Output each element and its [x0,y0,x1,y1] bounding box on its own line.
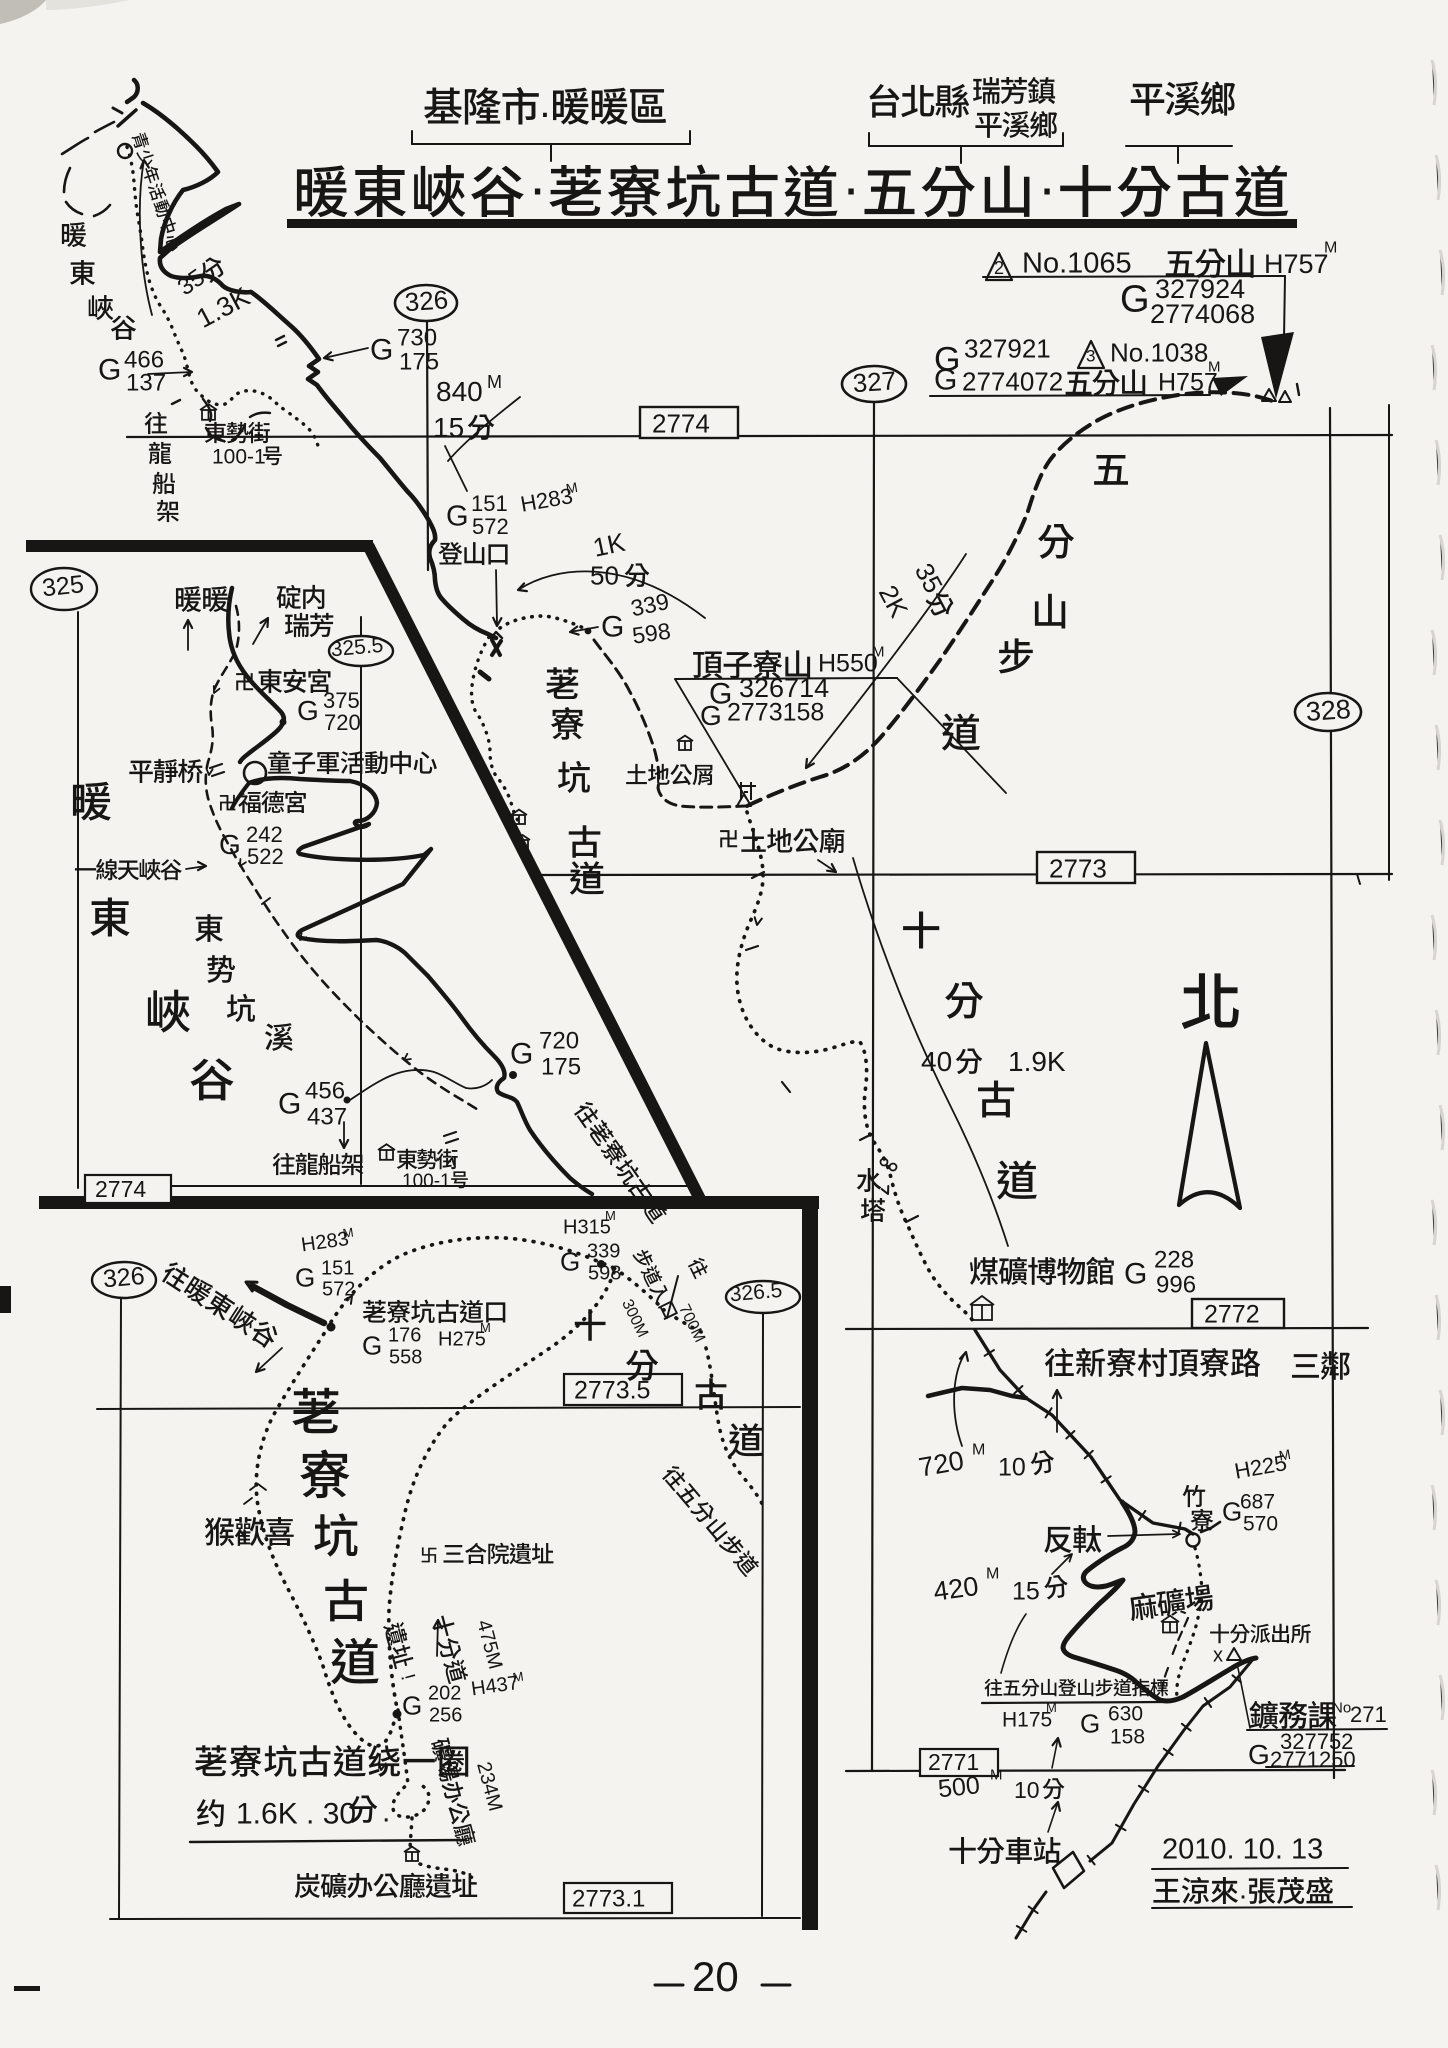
svg-text:175: 175 [541,1054,581,1081]
svg-text:No.1038: No.1038 [1110,337,1208,367]
svg-text:570: 570 [1243,1512,1278,1535]
svg-text:325.5: 325.5 [330,634,384,661]
svg-text:G: G [1248,1739,1270,1770]
svg-text:G: G [1120,279,1150,321]
svg-text:G: G [370,333,393,366]
svg-text:996: 996 [1156,1272,1196,1299]
svg-text:2773.5: 2773.5 [574,1377,650,1405]
svg-text:2773.1: 2773.1 [572,1886,645,1913]
svg-text:420: 420 [932,1571,981,1607]
svg-text:40: 40 [921,1046,952,1077]
svg-text:No.1065: No.1065 [1022,248,1132,280]
svg-text:M: M [1046,1700,1057,1715]
svg-text:M: M [872,644,885,661]
svg-text:M: M [972,1442,985,1459]
svg-text:2774068: 2774068 [1150,299,1255,329]
svg-text:2010. 10. 13: 2010. 10. 13 [1162,1834,1323,1866]
svg-text:H315: H315 [563,1217,611,1239]
svg-text:327: 327 [852,365,897,398]
svg-text:326.5: 326.5 [729,1279,783,1306]
svg-text:G: G [402,1690,422,1720]
svg-text:·: · [842,156,861,219]
svg-text:H175: H175 [1002,1708,1052,1731]
svg-text:G: G [510,1037,533,1070]
svg-text:151: 151 [321,1258,354,1280]
svg-text:151: 151 [471,491,508,516]
svg-text:326: 326 [404,284,449,317]
svg-text:572: 572 [472,514,509,539]
svg-text:G: G [98,353,121,386]
svg-text:437: 437 [307,1104,347,1131]
svg-text:720: 720 [324,710,361,735]
svg-text:M: M [480,1320,491,1335]
svg-text:328: 328 [1305,694,1352,727]
svg-text:·: · [528,156,547,219]
svg-text:2774: 2774 [652,408,710,438]
svg-text:2: 2 [994,258,1004,278]
svg-text:15: 15 [433,412,464,443]
svg-text:50: 50 [590,560,619,590]
svg-text:325: 325 [41,570,85,602]
svg-text:M: M [487,372,502,392]
svg-text:G: G [297,695,319,726]
svg-text:500: 500 [937,1771,981,1803]
svg-text:10: 10 [998,1454,1026,1482]
svg-text:G: G [601,610,624,643]
svg-text:2773: 2773 [1049,853,1107,883]
svg-text:100-1: 100-1 [402,1171,451,1192]
svg-text:15: 15 [1012,1578,1040,1606]
svg-text:522: 522 [247,844,284,869]
svg-text:339: 339 [587,1241,620,1263]
svg-text:2772: 2772 [1204,1301,1260,1329]
svg-text:630: 630 [1108,1702,1143,1725]
svg-text:G: G [278,1087,301,1120]
svg-text:1.9K: 1.9K [1008,1046,1066,1077]
svg-text:2771250: 2771250 [1270,1747,1356,1772]
svg-text:·: · [1038,156,1057,219]
svg-text:175: 175 [399,349,439,376]
svg-text:456: 456 [305,1078,345,1105]
svg-text:202: 202 [428,1683,461,1705]
svg-text:G: G [295,1262,315,1292]
svg-text:M: M [605,1208,616,1223]
svg-text:G: G [1080,1708,1100,1738]
svg-text:558: 558 [389,1347,422,1369]
svg-text:H757: H757 [1264,249,1329,279]
svg-text:G: G [362,1330,382,1360]
svg-text:3: 3 [1086,346,1095,365]
svg-text:687: 687 [1240,1490,1275,1513]
svg-text:327921: 327921 [964,333,1051,363]
svg-text:1.6K . 30: 1.6K . 30 [236,1797,356,1830]
svg-text:.: . [539,82,550,126]
svg-text:10: 10 [1014,1777,1040,1803]
svg-text:H275: H275 [438,1329,486,1351]
svg-text:840: 840 [436,376,483,407]
svg-text:M: M [990,1767,1003,1784]
svg-text:x: x [1213,1645,1223,1667]
svg-text:No: No [1332,1700,1351,1717]
svg-text:20: 20 [692,1953,739,2000]
svg-text:2773158: 2773158 [727,699,824,727]
svg-text:271: 271 [1350,1702,1387,1727]
svg-text:G: G [934,363,957,396]
svg-text:100-1: 100-1 [212,445,266,468]
svg-text:M: M [1324,240,1337,257]
svg-text:G: G [1124,1257,1147,1290]
svg-text:G: G [219,829,241,860]
svg-text:256: 256 [429,1705,462,1727]
svg-text:2774: 2774 [95,1176,146,1202]
svg-text:2774072: 2774072 [962,366,1063,396]
svg-text:G: G [700,700,722,731]
svg-text:M: M [1208,359,1221,376]
svg-text:M: M [342,1225,355,1241]
svg-text:G: G [446,501,469,533]
svg-text:176: 176 [388,1325,421,1347]
svg-text:730: 730 [397,325,437,352]
svg-text:M: M [986,1566,999,1583]
svg-text:326: 326 [102,1262,146,1294]
svg-text:598: 598 [631,618,673,649]
svg-text:M: M [512,1669,525,1685]
svg-text:228: 228 [1154,1247,1194,1274]
svg-text:.: . [1239,1874,1247,1906]
svg-text:158: 158 [1110,1725,1145,1748]
svg-text:.: . [382,1795,390,1828]
svg-text:720: 720 [539,1028,579,1055]
